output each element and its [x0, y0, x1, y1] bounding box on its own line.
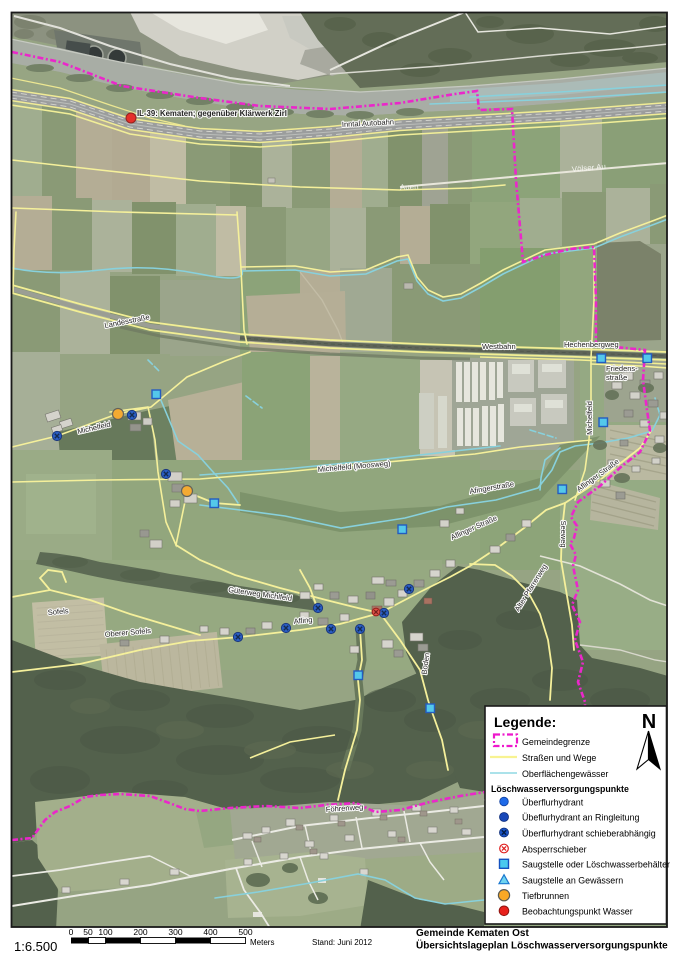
svg-text:200: 200	[133, 927, 147, 937]
svg-text:Übeflurhydrant an Ringleitung: Übeflurhydrant an Ringleitung	[522, 813, 639, 823]
svg-text:Absperrschieber: Absperrschieber	[522, 845, 587, 855]
svg-text:Überflurhydrant schieberabhäng: Überflurhydrant schieberabhängig	[522, 829, 656, 839]
svg-text:Meters: Meters	[250, 938, 274, 947]
svg-text:Tiefbrunnen: Tiefbrunnen	[522, 891, 569, 901]
svg-text:100: 100	[98, 927, 112, 937]
svg-text:300: 300	[168, 927, 182, 937]
svg-text:Gemeinde Kematen Ost: Gemeinde Kematen Ost	[416, 928, 529, 939]
svg-text:400: 400	[203, 927, 217, 937]
svg-text:1:6.500: 1:6.500	[14, 939, 57, 954]
svg-text:Saugstelle oder Löschwasserbeh: Saugstelle oder Löschwasserbehälter	[522, 860, 670, 870]
svg-text:Übersichtslageplan Löschwasser: Übersichtslageplan Löschwasserversorgung…	[416, 939, 668, 952]
svg-text:Löschwasserversorgungspunkte: Löschwasserversorgungspunkte	[491, 784, 629, 794]
svg-text:Oberflächengewässer: Oberflächengewässer	[522, 769, 608, 779]
svg-text:Überflurhydrant: Überflurhydrant	[522, 798, 584, 808]
svg-text:Stand: Juni 2012: Stand: Juni 2012	[312, 938, 373, 947]
svg-text:50: 50	[83, 927, 93, 937]
svg-text:Saugstelle an Gewässern: Saugstelle an Gewässern	[522, 876, 623, 886]
svg-text:0: 0	[69, 927, 74, 937]
svg-text:Legende:: Legende:	[494, 714, 556, 730]
svg-text:500: 500	[238, 927, 252, 937]
svg-text:N: N	[642, 711, 656, 733]
svg-text:Gemeindegrenze: Gemeindegrenze	[522, 737, 590, 747]
svg-text:Beobachtungspunkt Wasser: Beobachtungspunkt Wasser	[522, 907, 633, 917]
svg-text:Straßen und Wege: Straßen und Wege	[522, 753, 596, 763]
